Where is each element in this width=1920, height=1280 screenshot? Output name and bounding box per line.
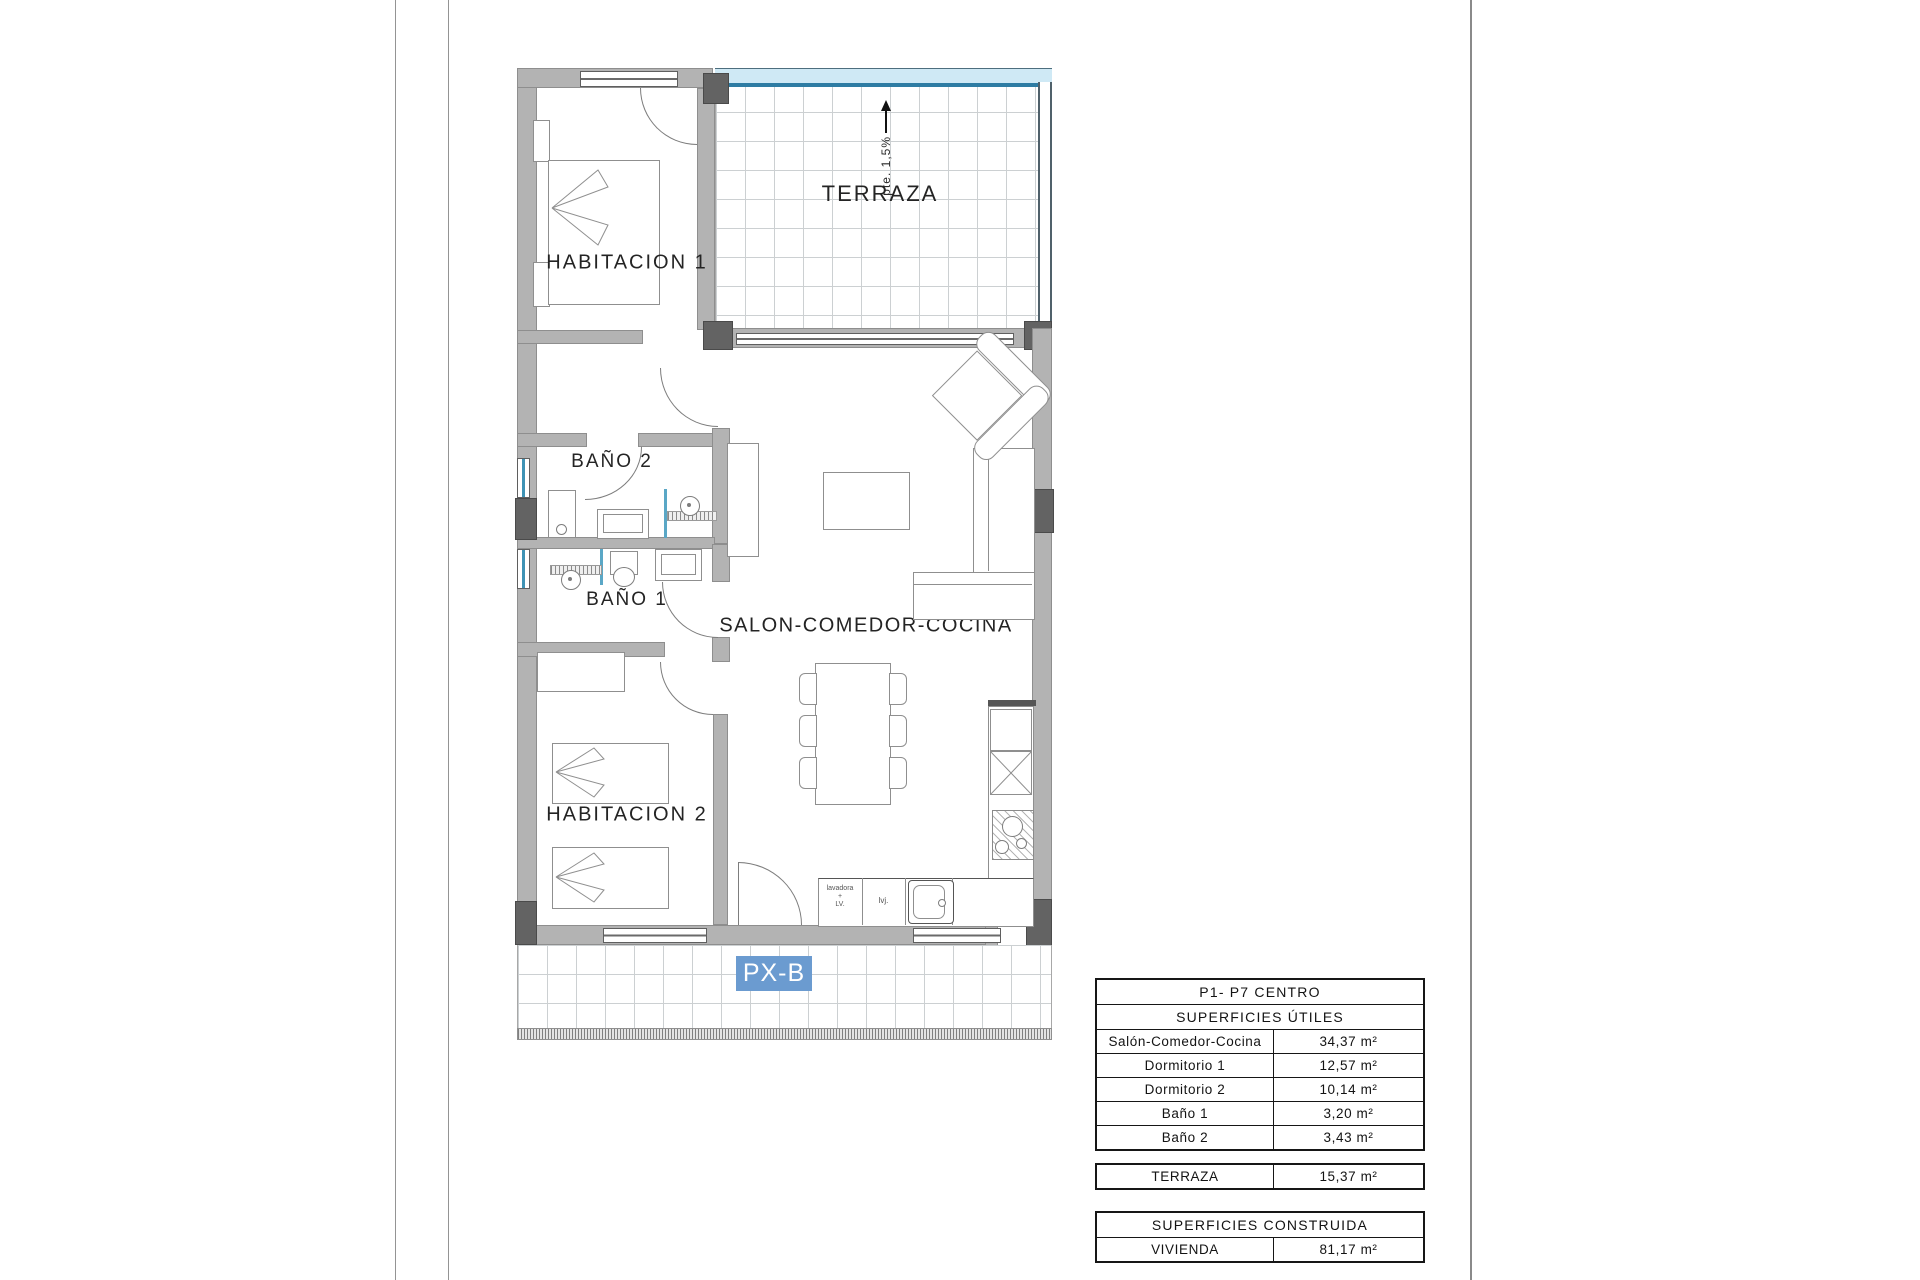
terraza-glass-railing-right — [1038, 82, 1052, 328]
sink-bano1-basin — [661, 554, 696, 575]
slope-arrow-stem — [885, 110, 887, 133]
wall-habitacion1-right — [697, 88, 715, 330]
row-value: 15,37 m² — [1274, 1165, 1423, 1188]
room-label-bano2: BAÑO 2 — [571, 451, 653, 473]
unit-badge: PX-B — [736, 956, 812, 991]
areas-table-construida: SUPERFICIES CONSTRUIDA VIVIENDA 81,17 m² — [1095, 1211, 1425, 1263]
cooktop-burner-small1 — [995, 840, 1009, 854]
toilet-bano1-bowl — [613, 567, 635, 587]
counter-divider-2 — [905, 878, 906, 925]
nightstand-hab1-top — [533, 120, 550, 162]
door-entrance — [738, 862, 802, 925]
bed-hab2a-blanket-fold — [554, 745, 614, 800]
kitchen-sink-drain — [938, 899, 946, 907]
washer-label-line3: LV. — [835, 901, 844, 908]
window-kitchen — [913, 928, 1001, 943]
table-row: Dormitorio 2 10,14 m² — [1097, 1077, 1423, 1101]
row-value: 34,37 m² — [1274, 1030, 1423, 1053]
row-value: 81,17 m² — [1274, 1238, 1423, 1261]
wall-bano2-top-right — [638, 433, 714, 447]
room-label-habitacion2: HABITACION 2 — [546, 804, 707, 827]
fridge — [990, 709, 1032, 751]
row-label: Baño 1 — [1097, 1102, 1274, 1125]
pillar-left-middle — [515, 498, 537, 540]
row-value: 3,20 m² — [1274, 1102, 1423, 1125]
boiler-knob — [556, 524, 567, 535]
window-habitacion1 — [580, 71, 678, 87]
dining-chair-l1 — [799, 673, 817, 705]
sofa-main — [973, 448, 1035, 574]
door-habitacion2 — [660, 662, 713, 715]
sheet-border-line-right — [1470, 0, 1472, 1280]
pillar-terraza-left — [703, 321, 733, 350]
areas-table-subtitle: SUPERFICIES ÚTILES — [1097, 1004, 1423, 1029]
areas-table-main: P1- P7 CENTRO SUPERFICIES ÚTILES Salón-C… — [1095, 978, 1425, 1151]
door-bano1 — [662, 582, 718, 638]
bed-hab1-blanket-fold — [550, 165, 620, 300]
sheet-border-line-left-inner — [448, 0, 449, 1280]
row-label: TERRAZA — [1097, 1165, 1274, 1188]
washer-label-line2: + — [838, 893, 842, 900]
sofa-chaise-cushion-line — [914, 584, 1032, 585]
row-label: VIVIENDA — [1097, 1238, 1274, 1261]
dining-chair-l2 — [799, 715, 817, 747]
dining-chair-l3 — [799, 757, 817, 789]
pillar-top — [703, 73, 729, 104]
row-label: Salón-Comedor-Cocina — [1097, 1030, 1274, 1053]
sink-bano2-basin — [603, 514, 643, 533]
sofa-main-cushion-line — [988, 449, 989, 571]
drawing-sheet: pte. 1,5% TERRAZA HABITACION 1 BAÑO 2 — [0, 0, 1920, 1280]
bed-hab2b-blanket-fold — [554, 850, 614, 905]
washer-label: lavadora + LV. — [818, 885, 862, 909]
coffee-table — [823, 472, 910, 530]
dining-chair-r3 — [889, 757, 907, 789]
table-row: Dormitorio 1 12,57 m² — [1097, 1053, 1423, 1077]
row-value: 10,14 m² — [1274, 1078, 1423, 1101]
construida-title: SUPERFICIES CONSTRUIDA — [1097, 1213, 1423, 1237]
shower-head-bano2-dot — [687, 503, 691, 507]
table-row: Baño 1 3,20 m² — [1097, 1101, 1423, 1125]
shower-head-bano1-dot — [568, 577, 572, 581]
wall-bano2-top-left — [517, 433, 587, 447]
cooktop-burner-small2 — [1016, 838, 1027, 849]
cooktop-burner-large — [1002, 816, 1023, 837]
table-row: TERRAZA 15,37 m² — [1097, 1165, 1423, 1188]
room-label-bano1: BAÑO 1 — [586, 589, 668, 611]
window-bano1-left — [517, 549, 530, 589]
sofa-chaise — [913, 572, 1035, 620]
room-label-habitacion1: HABITACION 1 — [546, 252, 707, 275]
row-label: Baño 2 — [1097, 1126, 1274, 1149]
patio-edge-hatch — [517, 1028, 1052, 1040]
door-salon-hall — [660, 368, 718, 427]
pillar-bottom-left — [515, 901, 537, 945]
row-label: Dormitorio 2 — [1097, 1078, 1274, 1101]
dishwasher-label: lvj. — [862, 896, 905, 905]
oven-column-x — [990, 751, 1032, 795]
wardrobe-habitacion2 — [537, 652, 625, 692]
room-label-terraza: TERRAZA — [822, 181, 939, 207]
table-row: Salón-Comedor-Cocina 34,37 m² — [1097, 1029, 1423, 1053]
washer-label-line1: lavadora — [827, 885, 854, 892]
window-habitacion2 — [603, 928, 707, 943]
row-label: Dormitorio 1 — [1097, 1054, 1274, 1077]
terraza-glass-railing-top — [715, 68, 1052, 87]
wall-exterior-right — [1032, 328, 1052, 945]
window-bano2-left — [517, 458, 530, 498]
areas-table-terraza: TERRAZA 15,37 m² — [1095, 1163, 1425, 1190]
wall-habitacion2-right — [713, 714, 728, 925]
door-habitacion1 — [640, 88, 697, 145]
table-row: VIVIENDA 81,17 m² — [1097, 1237, 1423, 1261]
dining-table — [815, 663, 891, 805]
areas-table-title: P1- P7 CENTRO — [1097, 980, 1423, 1004]
sideboard-salon — [727, 443, 759, 557]
dining-chair-r1 — [889, 673, 907, 705]
row-value: 3,43 m² — [1274, 1126, 1423, 1149]
sheet-border-line-left-outer — [395, 0, 396, 1280]
table-row: Baño 2 3,43 m² — [1097, 1125, 1423, 1149]
row-value: 12,57 m² — [1274, 1054, 1423, 1077]
wall-banos-salon-c — [712, 637, 730, 662]
dining-chair-r2 — [889, 715, 907, 747]
wall-habitacion1-bottom — [517, 330, 643, 344]
